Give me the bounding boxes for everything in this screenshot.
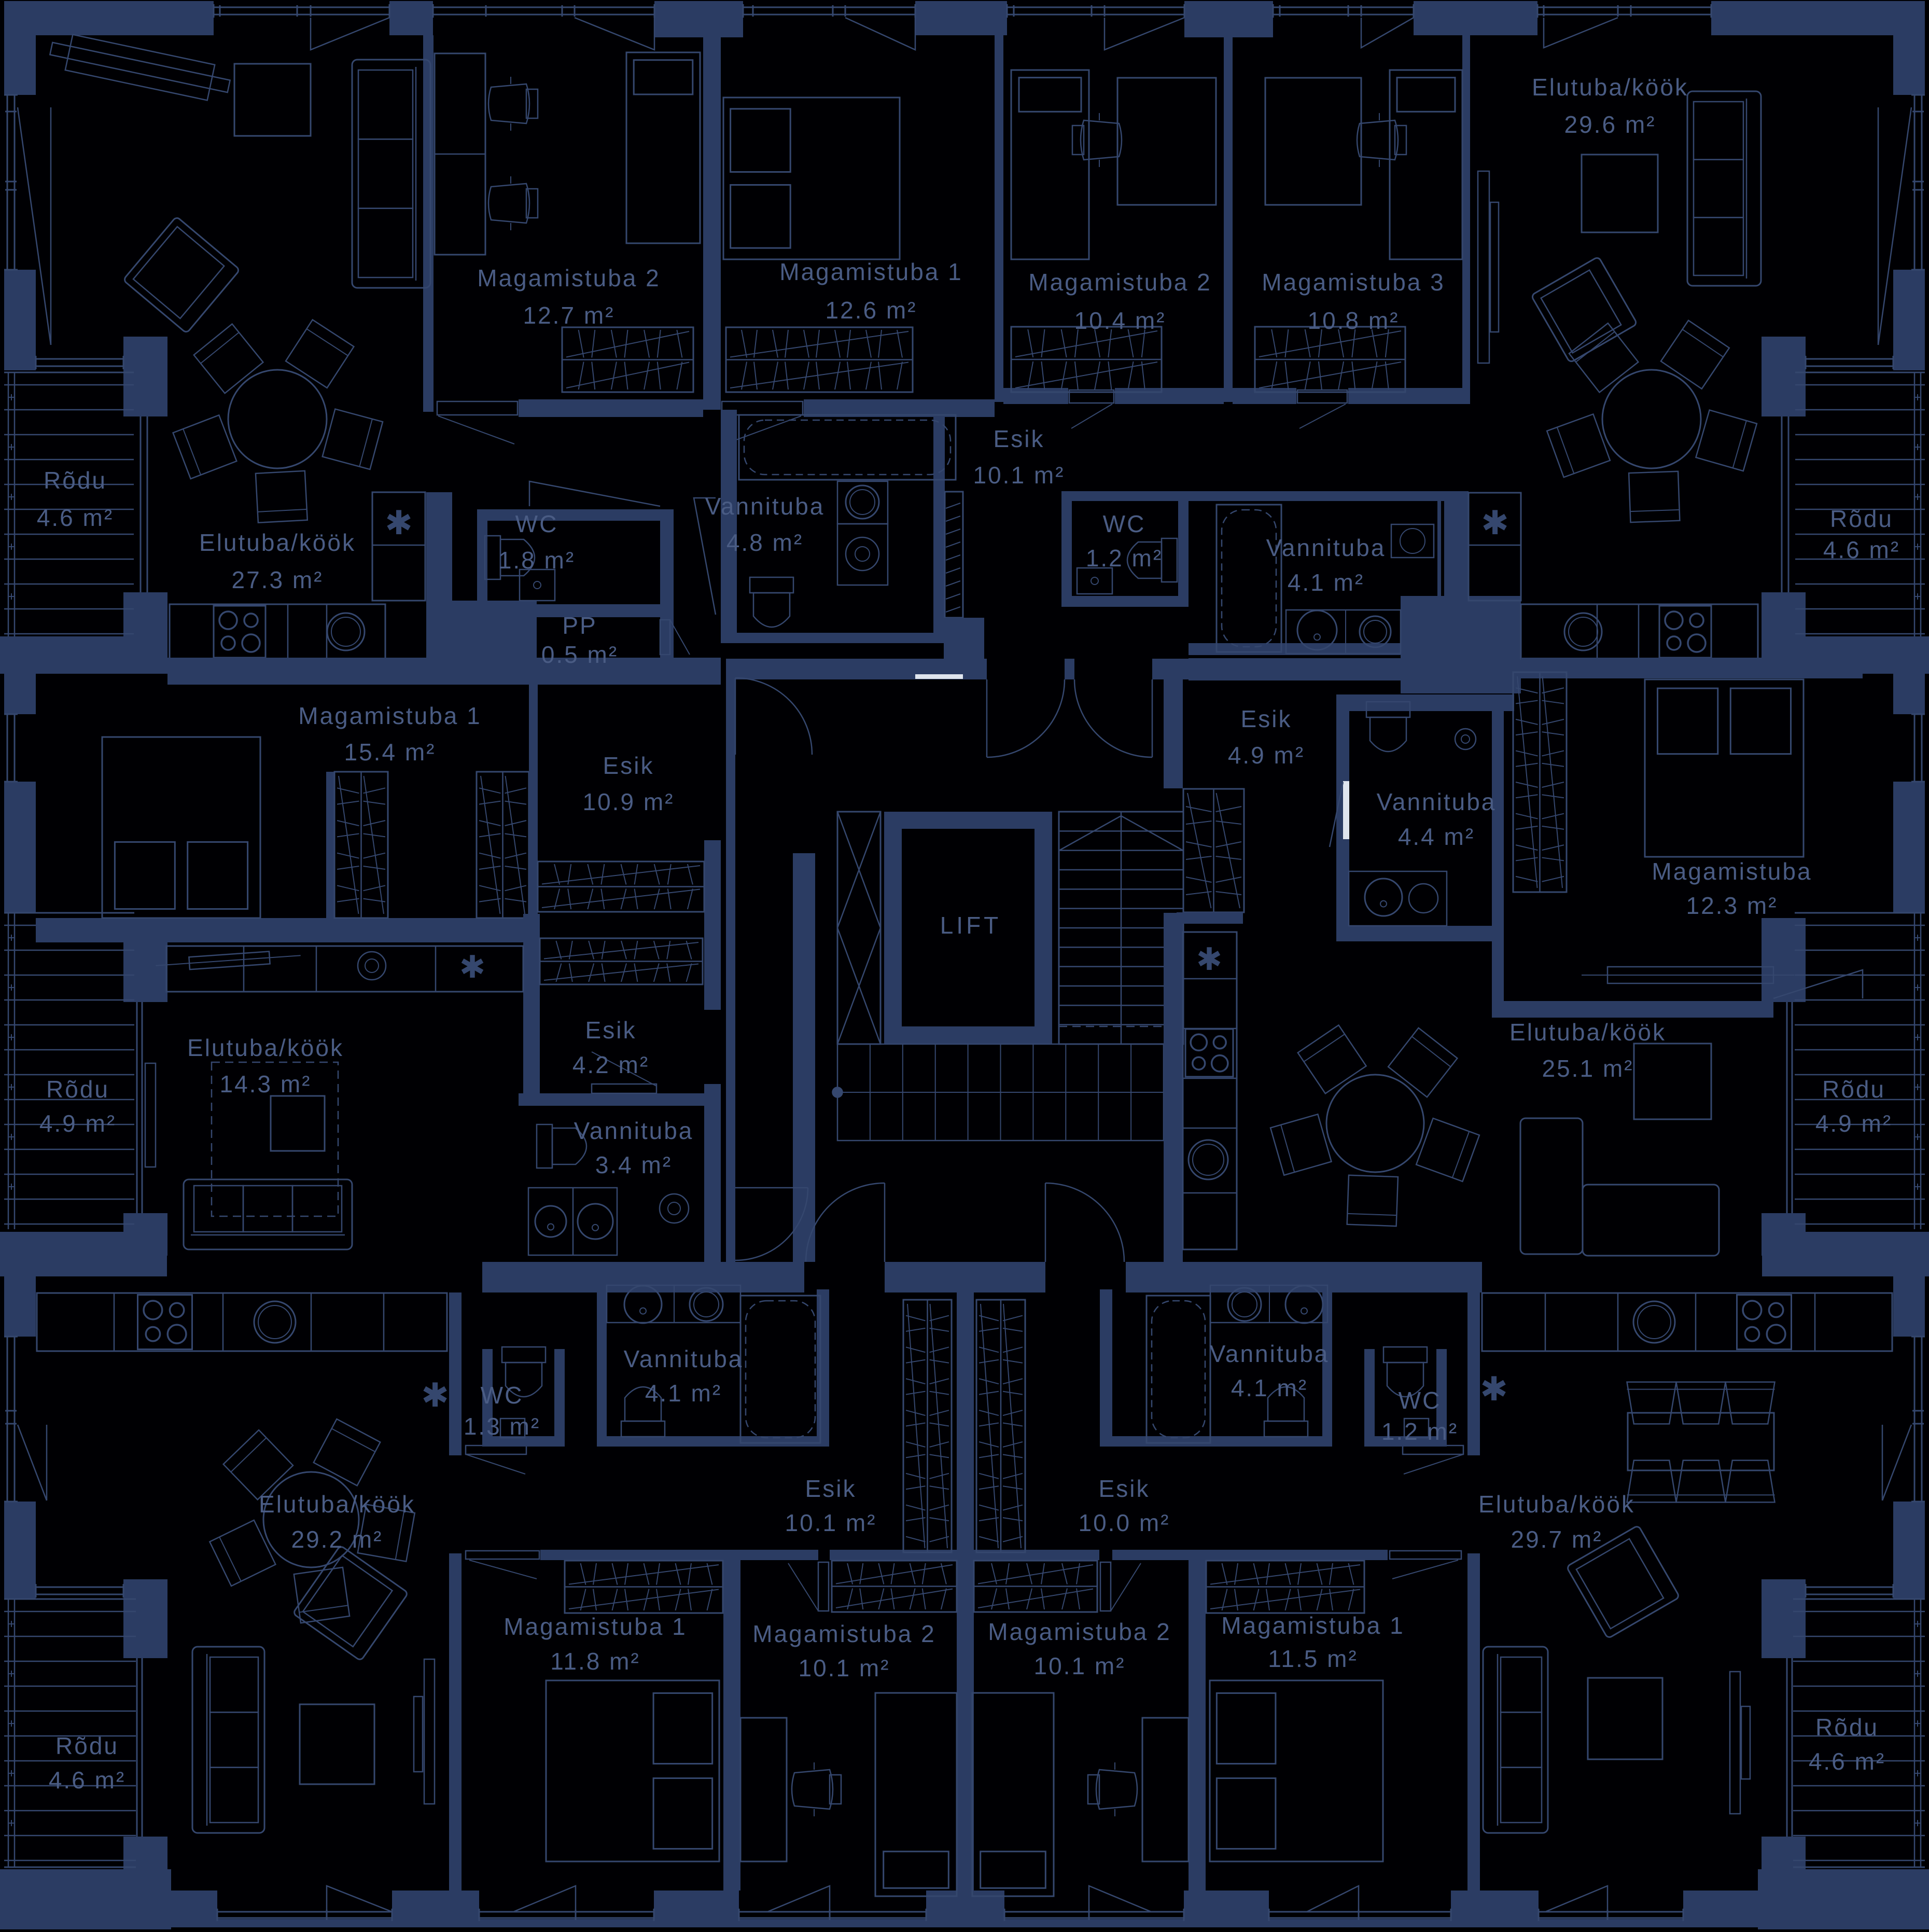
svg-text:4.8 m²: 4.8 m² xyxy=(726,529,803,556)
svg-text:✱: ✱ xyxy=(421,1377,449,1414)
svg-text:0.5 m²: 0.5 m² xyxy=(541,641,618,668)
svg-text:Magamistuba 2: Magamistuba 2 xyxy=(752,1620,936,1647)
svg-text:4.6 m²: 4.6 m² xyxy=(49,1767,125,1794)
svg-text:Magamistuba 3: Magamistuba 3 xyxy=(1262,269,1445,296)
svg-text:4.1 m²: 4.1 m² xyxy=(1231,1374,1308,1401)
svg-text:Vannituba: Vannituba xyxy=(574,1117,694,1144)
svg-text:✱: ✱ xyxy=(1481,504,1509,541)
svg-text:12.3 m²: 12.3 m² xyxy=(1686,892,1778,919)
svg-text:WC: WC xyxy=(515,510,558,537)
svg-text:10.0 m²: 10.0 m² xyxy=(1079,1509,1170,1536)
svg-text:15.4 m²: 15.4 m² xyxy=(344,739,436,766)
svg-text:Vannituba: Vannituba xyxy=(1377,788,1497,815)
svg-text:10.1 m²: 10.1 m² xyxy=(799,1655,890,1681)
svg-text:Magamistuba 2: Magamistuba 2 xyxy=(1028,269,1212,296)
svg-text:Esik: Esik xyxy=(603,752,654,779)
svg-text:Magamistuba: Magamistuba xyxy=(1652,858,1812,885)
svg-text:Rõdu: Rõdu xyxy=(1830,505,1893,532)
svg-text:27.3 m²: 27.3 m² xyxy=(232,566,324,593)
svg-text:Esik: Esik xyxy=(585,1017,637,1044)
svg-text:4.9 m²: 4.9 m² xyxy=(1228,742,1305,769)
svg-text:Magamistuba 2: Magamistuba 2 xyxy=(988,1618,1171,1645)
svg-text:29.6 m²: 29.6 m² xyxy=(1564,111,1656,138)
svg-text:Rõdu: Rõdu xyxy=(46,1076,109,1103)
svg-text:4.2 m²: 4.2 m² xyxy=(572,1051,649,1078)
svg-text:Rõdu: Rõdu xyxy=(1815,1714,1879,1741)
svg-text:Esik: Esik xyxy=(1099,1475,1150,1502)
svg-text:Rõdu: Rõdu xyxy=(55,1732,119,1759)
svg-text:4.6 m²: 4.6 m² xyxy=(37,504,114,531)
svg-text:Esik: Esik xyxy=(994,425,1045,452)
svg-text:4.6 m²: 4.6 m² xyxy=(1809,1748,1885,1775)
svg-text:10.9 m²: 10.9 m² xyxy=(583,788,675,815)
svg-text:Elutuba/köök: Elutuba/köök xyxy=(1509,1019,1666,1046)
svg-text:29.2 m²: 29.2 m² xyxy=(291,1526,383,1553)
svg-text:Vannituba: Vannituba xyxy=(624,1345,744,1372)
svg-text:1.2 m²: 1.2 m² xyxy=(1381,1418,1458,1445)
svg-text:Rõdu: Rõdu xyxy=(1822,1076,1885,1103)
svg-text:Magamistuba 1: Magamistuba 1 xyxy=(298,702,482,729)
svg-text:PP: PP xyxy=(562,612,597,639)
svg-text:Elutuba/köök: Elutuba/köök xyxy=(199,529,356,556)
svg-text:✱: ✱ xyxy=(1196,942,1222,977)
svg-text:Esik: Esik xyxy=(805,1475,857,1502)
svg-text:25.1 m²: 25.1 m² xyxy=(1542,1055,1634,1082)
svg-text:WC: WC xyxy=(481,1382,524,1409)
svg-text:Vannituba: Vannituba xyxy=(1210,1340,1330,1367)
svg-text:Magamistuba 1: Magamistuba 1 xyxy=(504,1613,687,1640)
svg-text:1.2 m²: 1.2 m² xyxy=(1086,545,1163,572)
svg-text:4.6 m²: 4.6 m² xyxy=(1823,536,1900,563)
svg-text:WC: WC xyxy=(1399,1387,1442,1414)
svg-text:3.4 m²: 3.4 m² xyxy=(595,1151,672,1178)
svg-text:WC: WC xyxy=(1103,510,1146,537)
svg-text:29.7 m²: 29.7 m² xyxy=(1511,1526,1603,1553)
svg-text:4.9 m²: 4.9 m² xyxy=(1815,1110,1892,1137)
svg-text:Magamistuba 2: Magamistuba 2 xyxy=(477,265,661,291)
svg-text:4.1 m²: 4.1 m² xyxy=(645,1380,722,1407)
svg-text:Vannituba: Vannituba xyxy=(705,493,825,520)
svg-text:11.5 m²: 11.5 m² xyxy=(1268,1645,1358,1672)
svg-text:Magamistuba 1: Magamistuba 1 xyxy=(1221,1612,1405,1639)
svg-text:Elutuba/köök: Elutuba/köök xyxy=(259,1491,415,1518)
svg-text:Magamistuba 1: Magamistuba 1 xyxy=(779,258,963,285)
svg-text:LIFT: LIFT xyxy=(940,912,1002,939)
svg-text:4.4 m²: 4.4 m² xyxy=(1398,823,1475,850)
svg-text:1.3 m²: 1.3 m² xyxy=(464,1413,540,1440)
svg-text:4.1 m²: 4.1 m² xyxy=(1288,569,1364,596)
svg-text:10.4 m²: 10.4 m² xyxy=(1074,307,1166,334)
svg-text:4.9 m²: 4.9 m² xyxy=(39,1110,116,1137)
svg-text:Elutuba/köök: Elutuba/köök xyxy=(1478,1491,1635,1518)
svg-text:11.8 m²: 11.8 m² xyxy=(550,1648,640,1675)
svg-text:Elutuba/köök: Elutuba/köök xyxy=(1532,74,1688,101)
svg-text:Vannituba: Vannituba xyxy=(1266,534,1386,561)
svg-text:14.3 m²: 14.3 m² xyxy=(220,1071,312,1097)
svg-text:10.1 m²: 10.1 m² xyxy=(785,1509,877,1536)
svg-text:✱: ✱ xyxy=(1480,1370,1508,1408)
svg-text:1.8 m²: 1.8 m² xyxy=(498,547,575,574)
svg-text:12.7 m²: 12.7 m² xyxy=(523,302,615,329)
svg-text:✱: ✱ xyxy=(385,504,413,541)
svg-text:Esik: Esik xyxy=(1241,705,1292,732)
svg-text:10.1 m²: 10.1 m² xyxy=(973,462,1065,489)
svg-text:12.6 m²: 12.6 m² xyxy=(826,297,917,324)
svg-text:10.8 m²: 10.8 m² xyxy=(1308,307,1400,334)
svg-text:Rõdu: Rõdu xyxy=(44,467,107,494)
svg-text:✱: ✱ xyxy=(459,950,485,984)
svg-text:10.1 m²: 10.1 m² xyxy=(1034,1652,1126,1679)
svg-text:Elutuba/köök: Elutuba/köök xyxy=(187,1034,344,1061)
